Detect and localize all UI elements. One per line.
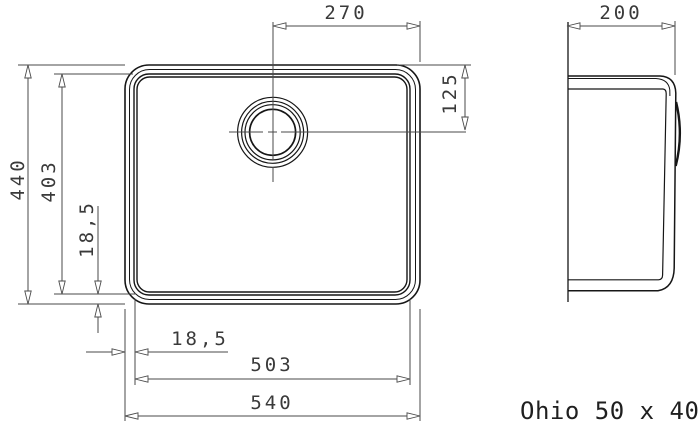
dim-bowl-height: 403 [38,74,65,294]
dim-rim-bottom: 18,5 [86,328,229,355]
dim-540-label: 540 [250,392,293,414]
side-inner-profile [568,89,666,280]
arrowhead-down-icon [25,291,31,304]
drain-outlet [229,22,466,182]
sink-technical-drawing: 270 200 125 440 403 18,5 [0,0,700,428]
bowl-outer-edge [134,74,410,295]
front-view [125,22,466,304]
side-outer-profile [568,76,676,291]
dim-200-label: 200 [599,2,642,24]
arrowhead-right-icon [397,376,410,382]
arrowhead-right-icon [112,349,125,355]
extension-lines [18,21,675,421]
arrowhead-up-icon [59,74,65,87]
dim-side-depth: 200 [567,2,675,29]
arrowhead-up-icon [25,65,31,78]
arrowhead-left-icon [125,413,138,419]
dim-overall-width: 540 [125,392,420,419]
arrowhead-right-icon [407,23,420,29]
arrowhead-right-icon [407,413,420,419]
arrowhead-up-icon [95,304,101,317]
arrowhead-left-icon [567,23,580,29]
side-rim-roll-line [568,79,670,97]
drawing-svg: 270 200 125 440 403 18,5 [0,0,700,428]
dim-overall-height: 440 [7,65,31,304]
arrowhead-left-icon [273,23,286,29]
dim-drain-center-from-top: 125 [439,65,468,130]
dim-125-label: 125 [439,71,461,114]
dim-18-5-left-label: 18,5 [76,200,98,258]
dim-18-5-bottom-label: 18,5 [171,328,229,350]
dim-bowl-width: 503 [135,354,410,382]
model-title: Ohio 50 x 40 [520,397,699,425]
arrowhead-down-icon [95,281,101,294]
arrowhead-left-icon [135,376,148,382]
arrowhead-right-icon [662,23,675,29]
arrowhead-up-icon [462,65,468,78]
dim-drain-center-from-right: 270 [273,2,420,29]
side-view [568,22,680,302]
dim-rim-left: 18,5 [76,200,101,333]
dim-403-label: 403 [38,159,60,202]
dim-270-label: 270 [324,2,367,24]
arrowhead-down-icon [462,117,468,130]
dim-503-label: 503 [250,354,293,376]
arrowhead-down-icon [59,281,65,294]
dim-440-label: 440 [7,157,29,200]
arrowhead-left-icon [135,349,148,355]
